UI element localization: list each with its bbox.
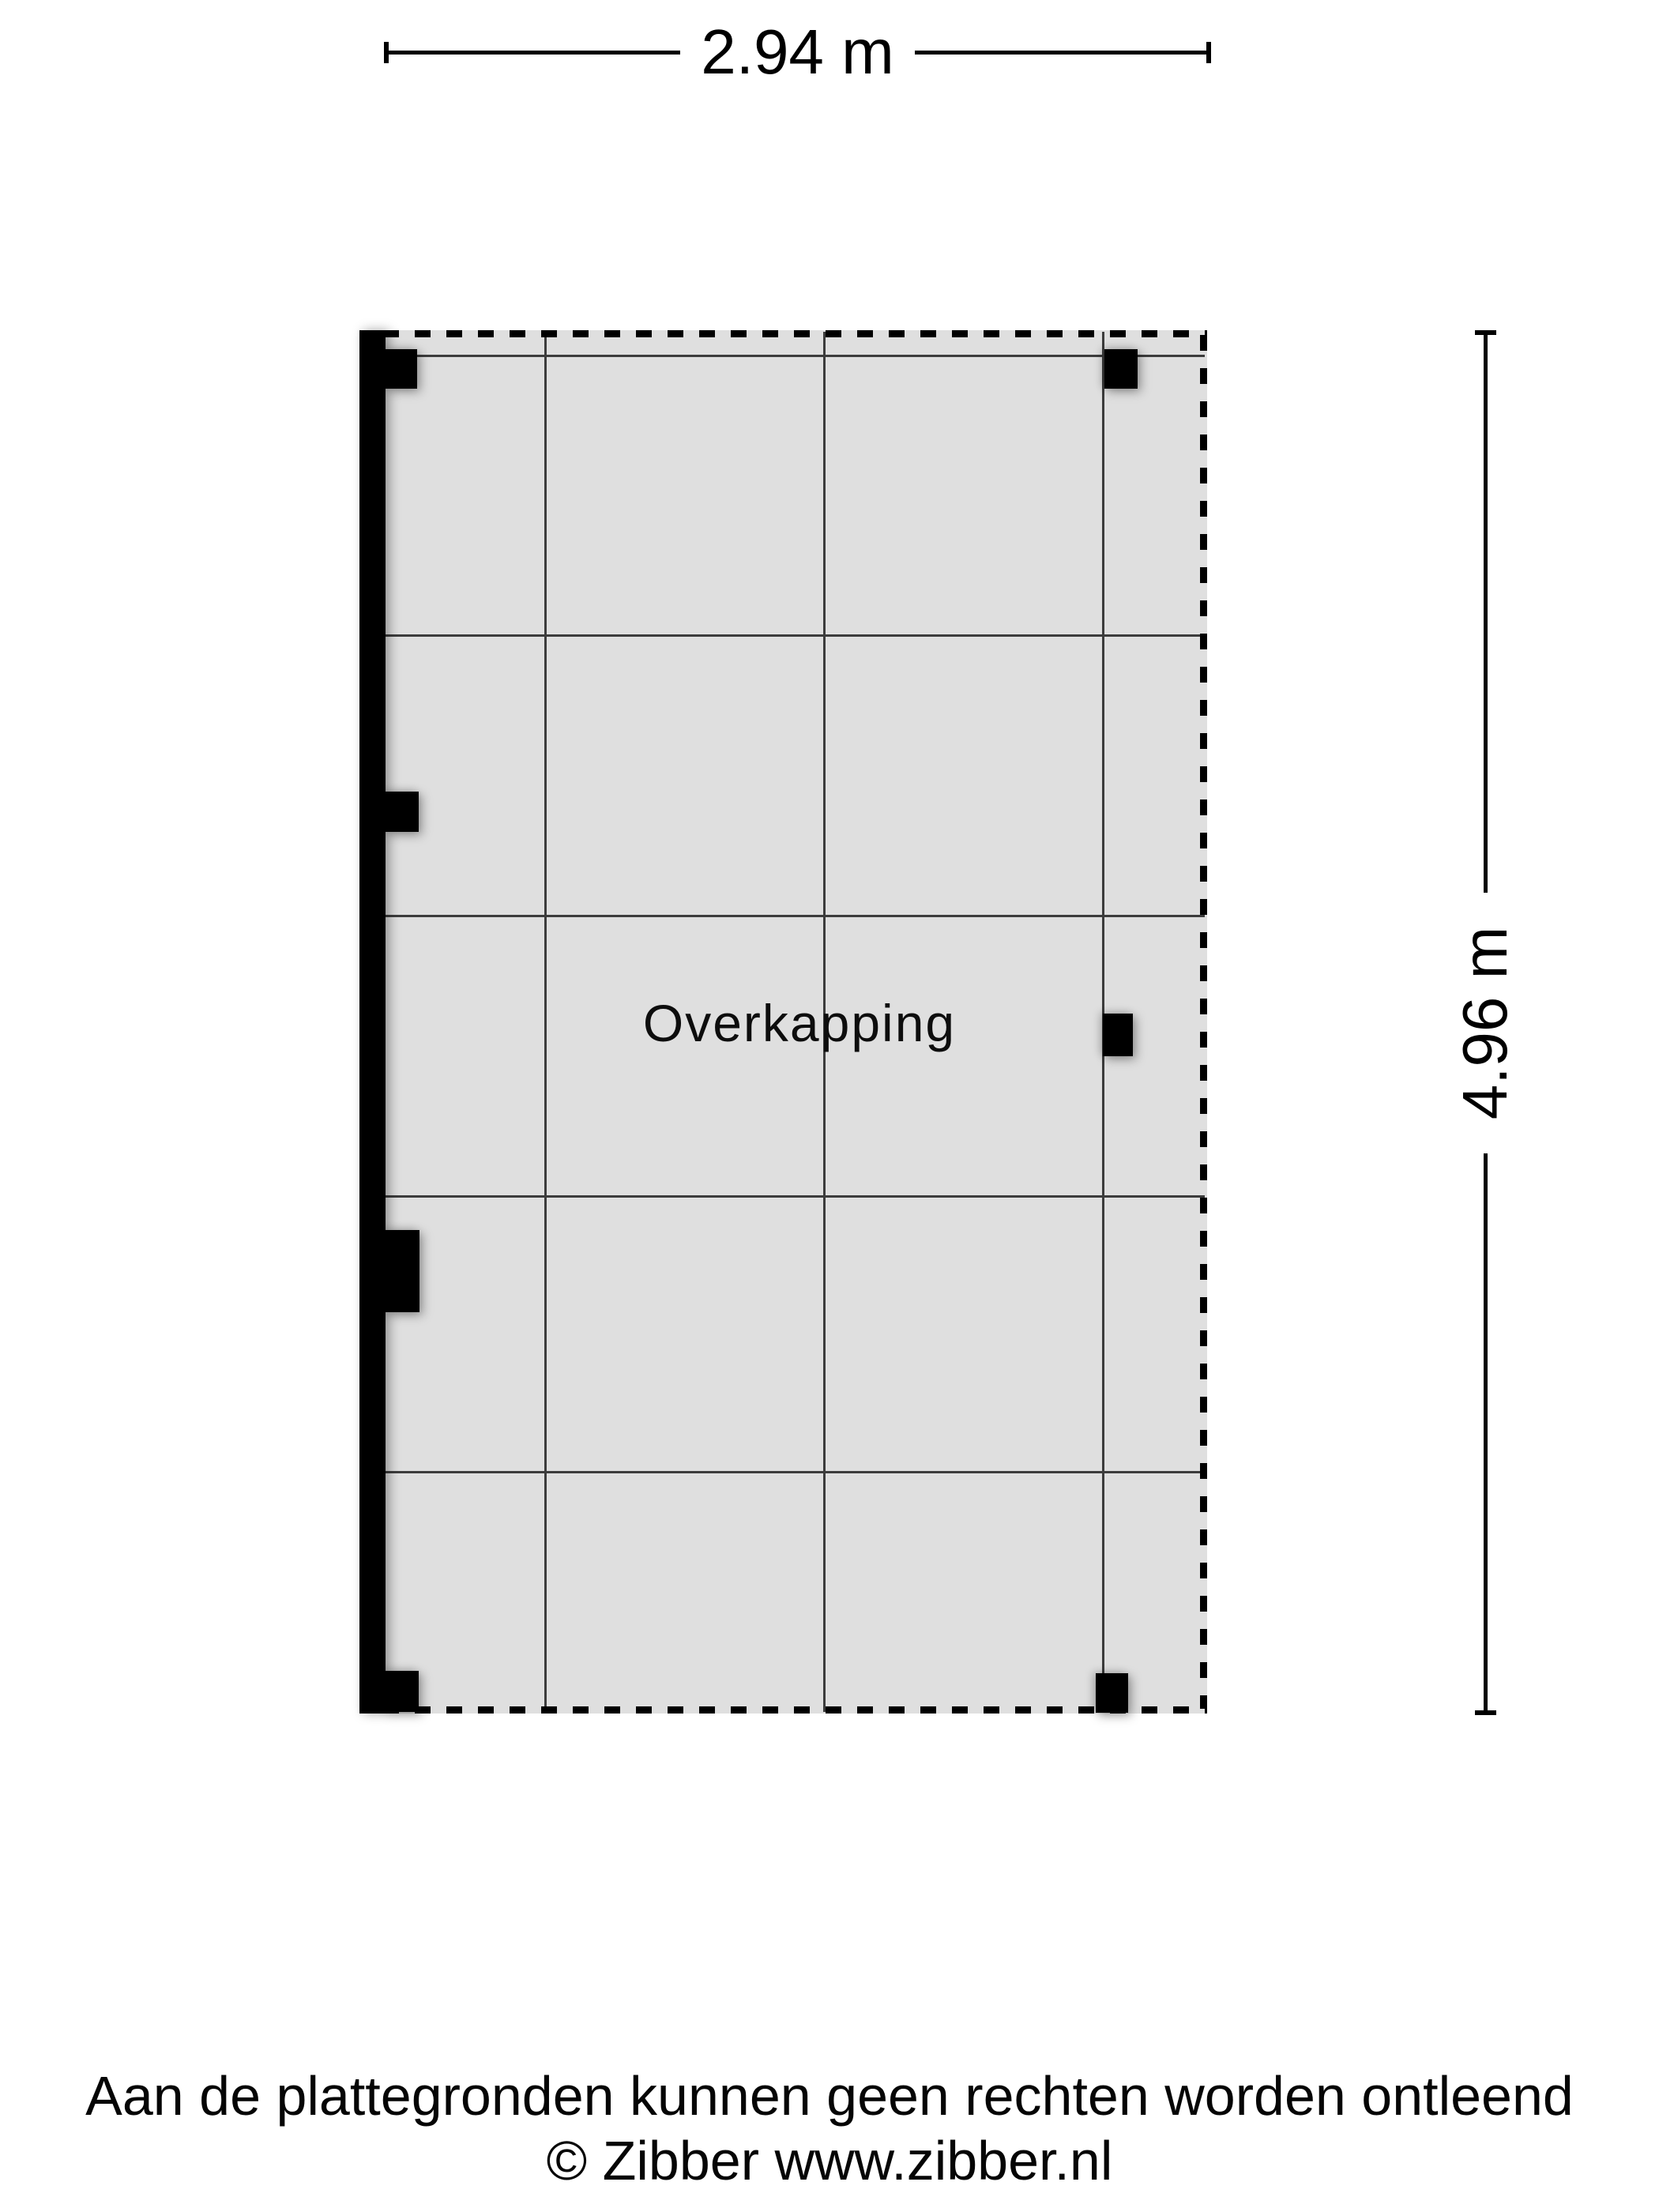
- dimension-height-label-box: 4.96 m: [1465, 893, 1506, 1153]
- dimension-tick-bottom: [1475, 1710, 1496, 1715]
- grid-line-horizontal-3: [386, 915, 1205, 917]
- footer-copyright: © Zibber www.zibber.nl: [0, 2128, 1659, 2193]
- grid-line-horizontal-1: [386, 355, 1205, 357]
- post-bottom-left: [386, 1671, 419, 1712]
- dimension-height-label: 4.96 m: [1454, 926, 1517, 1119]
- left-wall: [359, 330, 386, 1714]
- post-middle-right: [1103, 1014, 1133, 1056]
- grid-line-horizontal-4: [386, 1195, 1205, 1198]
- grid-line-horizontal-2: [386, 634, 1205, 637]
- post-middle-left: [386, 792, 419, 832]
- dimension-line-left-segment: [389, 51, 680, 55]
- footer-disclaimer: Aan de plattegronden kunnen geen rechten…: [0, 2063, 1659, 2128]
- floorplan: Overkapping: [359, 330, 1207, 1714]
- post-lower-left: [386, 1230, 419, 1312]
- grid-line-vertical-1: [544, 332, 547, 1712]
- post-top-left: [386, 349, 417, 389]
- dimension-right: 4.96 m: [1465, 330, 1506, 1715]
- dimension-line-right-segment: [915, 51, 1206, 55]
- dimension-line-bottom-segment: [1484, 1153, 1488, 1711]
- dimension-top: 2.94 m: [384, 28, 1211, 76]
- dashed-border-top: [383, 330, 1207, 337]
- floorplan-page: { "dimensions": { "top": { "label": "2.9…: [0, 0, 1659, 2212]
- dashed-border-bottom: [383, 1706, 1207, 1714]
- grid-line-horizontal-5: [386, 1471, 1205, 1473]
- post-top-right: [1104, 349, 1138, 389]
- dimension-width-label: 2.94 m: [680, 21, 915, 84]
- post-bottom-right: [1096, 1673, 1128, 1713]
- footer: Aan de plattegronden kunnen geen rechten…: [0, 2063, 1659, 2193]
- dashed-border-right: [1200, 335, 1207, 1709]
- dimension-tick-right: [1206, 42, 1211, 63]
- dimension-line-top-segment: [1484, 335, 1488, 893]
- room-label: Overkapping: [643, 993, 956, 1053]
